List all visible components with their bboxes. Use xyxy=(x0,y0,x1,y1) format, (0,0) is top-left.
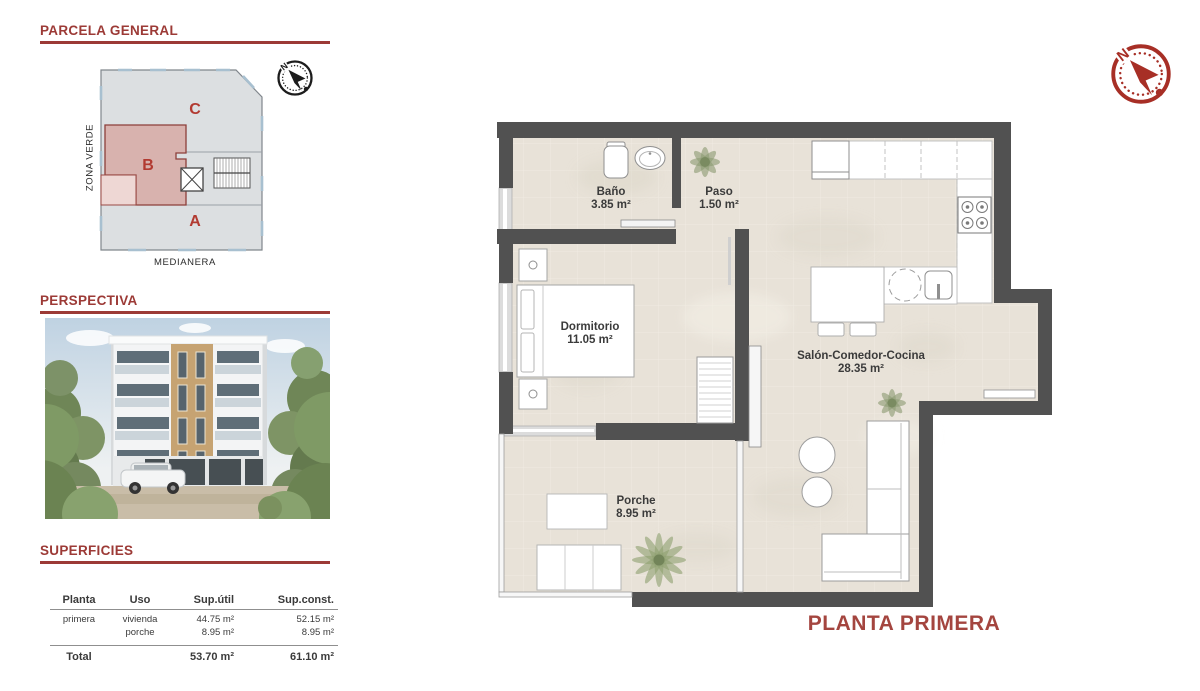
section-rule xyxy=(40,561,330,564)
porch-table xyxy=(547,494,607,529)
wardrobe xyxy=(697,357,733,423)
zone-b-label: B xyxy=(142,157,154,174)
sink-icon xyxy=(635,147,665,170)
section-rule xyxy=(40,311,330,314)
room-area-porche: 8.95 m² xyxy=(616,508,656,520)
toilet-icon xyxy=(604,142,628,178)
lounge-chair xyxy=(537,545,621,590)
col-header-uso: Uso xyxy=(108,594,172,606)
stairs-icon xyxy=(214,158,250,188)
col-header-sup-const: Sup.const. xyxy=(234,594,334,606)
total-uso-empty xyxy=(108,651,172,663)
compass-icon: N xyxy=(273,56,317,100)
section-title-parcela: PARCELA GENERAL xyxy=(40,23,340,38)
elevator-icon xyxy=(181,168,203,191)
table-header-row: Planta Uso Sup.útil Sup.const. xyxy=(50,594,338,610)
zone-a-label: A xyxy=(189,213,201,230)
compass-needle xyxy=(1130,60,1159,95)
medianera-label: MEDIANERA xyxy=(125,257,245,268)
floor-plan-drawing: Baño 3.85 m² Paso 1.50 m² Dormitorio 11.… xyxy=(497,117,1062,617)
util-porche: 8.95 m² xyxy=(172,627,234,640)
room-area-salon: 28.35 m² xyxy=(838,363,884,375)
zone-c-label: C xyxy=(189,101,201,118)
pavement xyxy=(105,494,285,504)
total-label: Total xyxy=(50,651,108,663)
room-name-salon: Salón-Comedor-Cocina xyxy=(797,350,925,362)
room-name-paso: Paso xyxy=(705,186,733,198)
section-title-perspectiva: PERSPECTIVA xyxy=(40,293,340,308)
room-area-dormitorio: 11.05 m² xyxy=(567,334,613,346)
floorplan-brochure-page: PARCELA GENERAL C xyxy=(0,0,1200,691)
const-porche: 8.95 m² xyxy=(234,627,334,640)
building-render xyxy=(45,318,330,519)
const-vivienda: 52.15 m² xyxy=(234,614,334,627)
compass-icon: N xyxy=(1104,37,1178,111)
compass-dot xyxy=(304,87,308,91)
table-total-row: Total 53.70 m² 61.10 m² xyxy=(50,645,338,663)
zona-verde-label: ZONA VERDE xyxy=(85,113,96,203)
total-sup-util: 53.70 m² xyxy=(172,651,234,663)
total-sup-const: 61.10 m² xyxy=(234,651,334,663)
uso-vivienda: vivienda xyxy=(108,614,172,627)
cell-planta: primera xyxy=(50,614,108,639)
col-header-sup-util: Sup.útil xyxy=(172,594,234,606)
room-name-bano: Baño xyxy=(597,186,626,198)
col-header-planta: Planta xyxy=(50,594,108,606)
site-plan-diagram: C B A xyxy=(88,56,273,256)
stove-icon xyxy=(958,197,991,233)
room-area-bano: 3.85 m² xyxy=(591,199,631,211)
section-title-superficies: SUPERFICIES xyxy=(40,543,340,558)
compass-needle xyxy=(288,70,305,91)
table-row: primera vivienda porche 44.75 m² 8.95 m²… xyxy=(50,610,338,645)
plant-icon xyxy=(878,389,906,417)
uso-porche: porche xyxy=(108,627,172,640)
compass-dot xyxy=(1156,89,1163,96)
areas-table: Planta Uso Sup.útil Sup.const. primera v… xyxy=(50,594,338,663)
room-name-dormitorio: Dormitorio xyxy=(561,321,620,333)
cell-sup-util: 44.75 m² 8.95 m² xyxy=(172,614,234,639)
cell-uso: vivienda porche xyxy=(108,614,172,639)
room-area-paso: 1.50 m² xyxy=(699,199,739,211)
console-shelf xyxy=(984,390,1035,398)
cell-sup-const: 52.15 m² 8.95 m² xyxy=(234,614,334,639)
plan-title: PLANTA PRIMERA xyxy=(779,612,1029,636)
room-name-porche: Porche xyxy=(617,495,656,507)
section-rule xyxy=(40,41,330,44)
util-vivienda: 44.75 m² xyxy=(172,614,234,627)
plant-icon xyxy=(690,147,720,177)
